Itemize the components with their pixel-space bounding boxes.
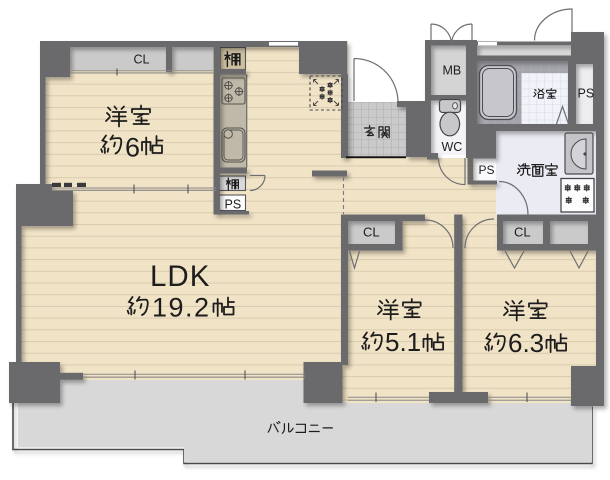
svg-text:CL: CL — [363, 225, 380, 240]
svg-text:6: 6 — [125, 133, 140, 163]
svg-text:MB: MB — [443, 64, 462, 78]
svg-text:LDK: LDK — [150, 260, 210, 293]
svg-text:5.1: 5.1 — [385, 327, 421, 357]
svg-text:CL: CL — [134, 53, 150, 67]
svg-text:PS: PS — [479, 163, 495, 177]
svg-text:6.3: 6.3 — [508, 328, 544, 358]
svg-text:PS: PS — [225, 198, 242, 212]
svg-text:WC: WC — [442, 140, 463, 154]
svg-text:PS: PS — [578, 87, 595, 101]
svg-text:19.2: 19.2 — [152, 293, 211, 323]
svg-text:CL: CL — [514, 225, 531, 240]
